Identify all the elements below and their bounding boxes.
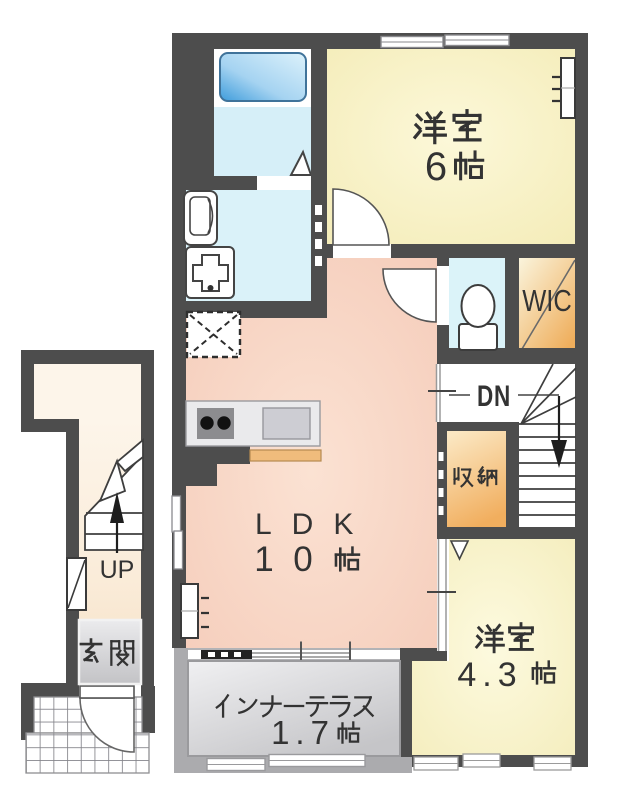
svg-text:UP: UP (100, 556, 135, 584)
svg-text:4.3: 4.3 (457, 656, 522, 694)
svg-text:0: 0 (293, 540, 312, 579)
svg-text:WIC: WIC (522, 284, 572, 318)
svg-text:1: 1 (254, 540, 273, 579)
svg-text:1.7: 1.7 (271, 714, 335, 751)
svg-text:6: 6 (425, 145, 447, 189)
svg-text:DN: DN (477, 379, 511, 413)
svg-text:LDK: LDK (255, 508, 373, 541)
